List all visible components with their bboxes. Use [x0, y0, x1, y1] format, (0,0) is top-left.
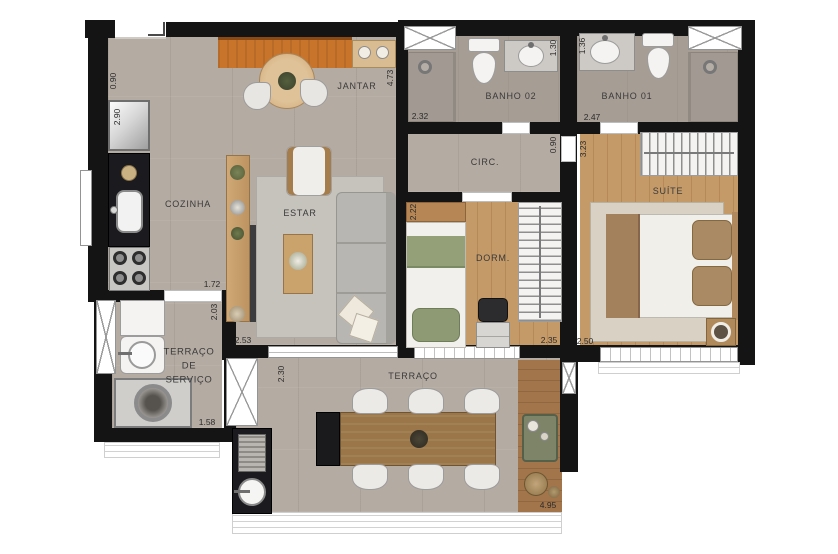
dim-estar-width: 2.53 [235, 335, 252, 345]
dining-chair [300, 79, 328, 107]
kitchen-sink [116, 190, 143, 233]
dim-dorm-height: 2.22 [408, 204, 418, 221]
dim-servico-width: 1.58 [199, 417, 216, 427]
dim-cozinha-width: 1.72 [204, 279, 221, 289]
dim-banho01-width: 1.36 [577, 38, 587, 55]
faucet-01 [602, 35, 608, 41]
tray-cup [527, 420, 539, 432]
terrace-centerpiece [410, 430, 428, 448]
terrace-chair [352, 464, 388, 490]
banho01-door-opening [600, 122, 638, 134]
entry-door-leaf [148, 22, 165, 36]
servico-line-2: DE [164, 359, 215, 373]
room-label-estar: ESTAR [283, 208, 316, 218]
dim-circ-width: 0.90 [548, 137, 558, 154]
suite-headboard [732, 212, 738, 320]
room-label-terraco: TERRAÇO [388, 371, 438, 381]
counter-bowl [121, 165, 137, 181]
shower-drain-01 [703, 60, 717, 74]
room-label-terraco-servico: TERRAÇO DE SERVIÇO [164, 345, 215, 386]
dim-kitchen-top: 2.90 [112, 109, 122, 126]
armchair [286, 146, 332, 196]
wall-baths-bottom-left [396, 122, 560, 134]
burner [113, 271, 127, 285]
dorm-pillow [412, 308, 460, 342]
dim-dorm-width: 2.35 [541, 335, 558, 345]
laundry-faucet [118, 352, 132, 355]
terrace-chair [408, 464, 444, 490]
dim-banho02-width: 1.30 [548, 40, 558, 57]
suite-wardrobe [640, 132, 738, 176]
suite-lamp [711, 322, 731, 342]
terrace-corner-window [562, 362, 576, 394]
banho02-window [404, 26, 456, 50]
shower-drain-02 [418, 60, 432, 74]
suite-pillow [692, 220, 732, 260]
room-label-cozinha: COZINHA [165, 199, 211, 209]
service-window [96, 300, 116, 374]
suite-window [600, 347, 738, 362]
dorm-door-opening [462, 192, 512, 202]
terrace-chair [408, 388, 444, 414]
burner [132, 271, 146, 285]
burner [113, 251, 127, 265]
laundry-cabinet [120, 300, 165, 336]
plate-setting [376, 46, 389, 59]
wall-service-bottom [94, 428, 234, 442]
room-label-dorm: DORM. [476, 253, 510, 263]
terrace-left-window [226, 358, 258, 426]
dim-banho02-shower: 2.32 [412, 111, 429, 121]
wall-left-upper [88, 20, 108, 302]
sink-faucet [110, 206, 118, 214]
estar-sliding-door [268, 346, 398, 358]
suite-bed-throw [606, 214, 640, 318]
suite-pillow [692, 266, 732, 306]
wall-right [738, 20, 755, 365]
dim-suite-length: 3.23 [578, 141, 588, 158]
sink-01 [590, 40, 620, 64]
toilet-tank-01 [642, 33, 674, 47]
bench-bowl [230, 200, 245, 215]
room-label-circ: CIRC. [471, 157, 500, 167]
terrace-railing [232, 512, 562, 534]
suite-wardrobe-rail [644, 152, 734, 154]
banho02-door-opening [502, 122, 530, 134]
dining-chair [243, 82, 271, 110]
suite-door-opening [561, 136, 576, 162]
dorm-desk [476, 322, 510, 348]
burner [132, 251, 146, 265]
banho01-window [688, 26, 742, 50]
bench-plant [230, 165, 245, 180]
dim-suite-width: 2.50 [577, 336, 594, 346]
terrace-table-end [316, 412, 340, 466]
dorm-chair [478, 298, 508, 322]
terrace-chair [464, 464, 500, 490]
sink-02 [518, 45, 544, 67]
dim-terraco-width: 4.95 [540, 500, 557, 510]
toilet-tank-02 [468, 38, 500, 52]
dorm-wardrobe-rail [539, 206, 541, 318]
dim-servico-height: 2.03 [209, 304, 219, 321]
room-label-jantar: JANTAR [337, 81, 376, 91]
wall-between-baths [560, 22, 577, 134]
service-door-opening [164, 290, 222, 302]
dim-jantar-wall: 4.73 [385, 70, 395, 87]
room-label-banho01: BANHO 01 [602, 91, 653, 101]
plate-setting [358, 46, 371, 59]
wall-top-main [166, 22, 398, 37]
deck-plant [524, 472, 548, 496]
dim-banho01-length: 2.47 [584, 112, 601, 122]
terrace-sink-faucet [234, 490, 250, 493]
dim-entry-width: 0.90 [108, 73, 118, 90]
service-sill [104, 442, 220, 458]
bench-vase [229, 306, 245, 322]
table-decor [289, 252, 307, 270]
dorm-blanket [407, 236, 465, 268]
washer-door [134, 384, 172, 422]
faucet-02 [528, 42, 534, 48]
table-centerpiece [278, 72, 296, 90]
servico-line-1: TERRAÇO [164, 345, 215, 359]
terrace-chair [464, 388, 500, 414]
room-label-suite: SUÍTE [653, 186, 684, 196]
kitchen-window [80, 170, 92, 246]
deck-plant-small [548, 486, 560, 498]
bench-plant [231, 227, 244, 240]
terrace-chair [352, 388, 388, 414]
servico-line-3: SERVIÇO [164, 373, 215, 387]
tray-cup [540, 432, 549, 441]
grill [238, 434, 266, 472]
floor-plan: JANTAR BANHO 02 BANHO 01 COZINHA ESTAR C… [0, 0, 838, 554]
laundry-tank-bowl [128, 341, 156, 369]
suite-window-sill [598, 362, 740, 374]
dim-terraco-height: 2.30 [276, 366, 286, 383]
room-label-banho02: BANHO 02 [486, 91, 537, 101]
